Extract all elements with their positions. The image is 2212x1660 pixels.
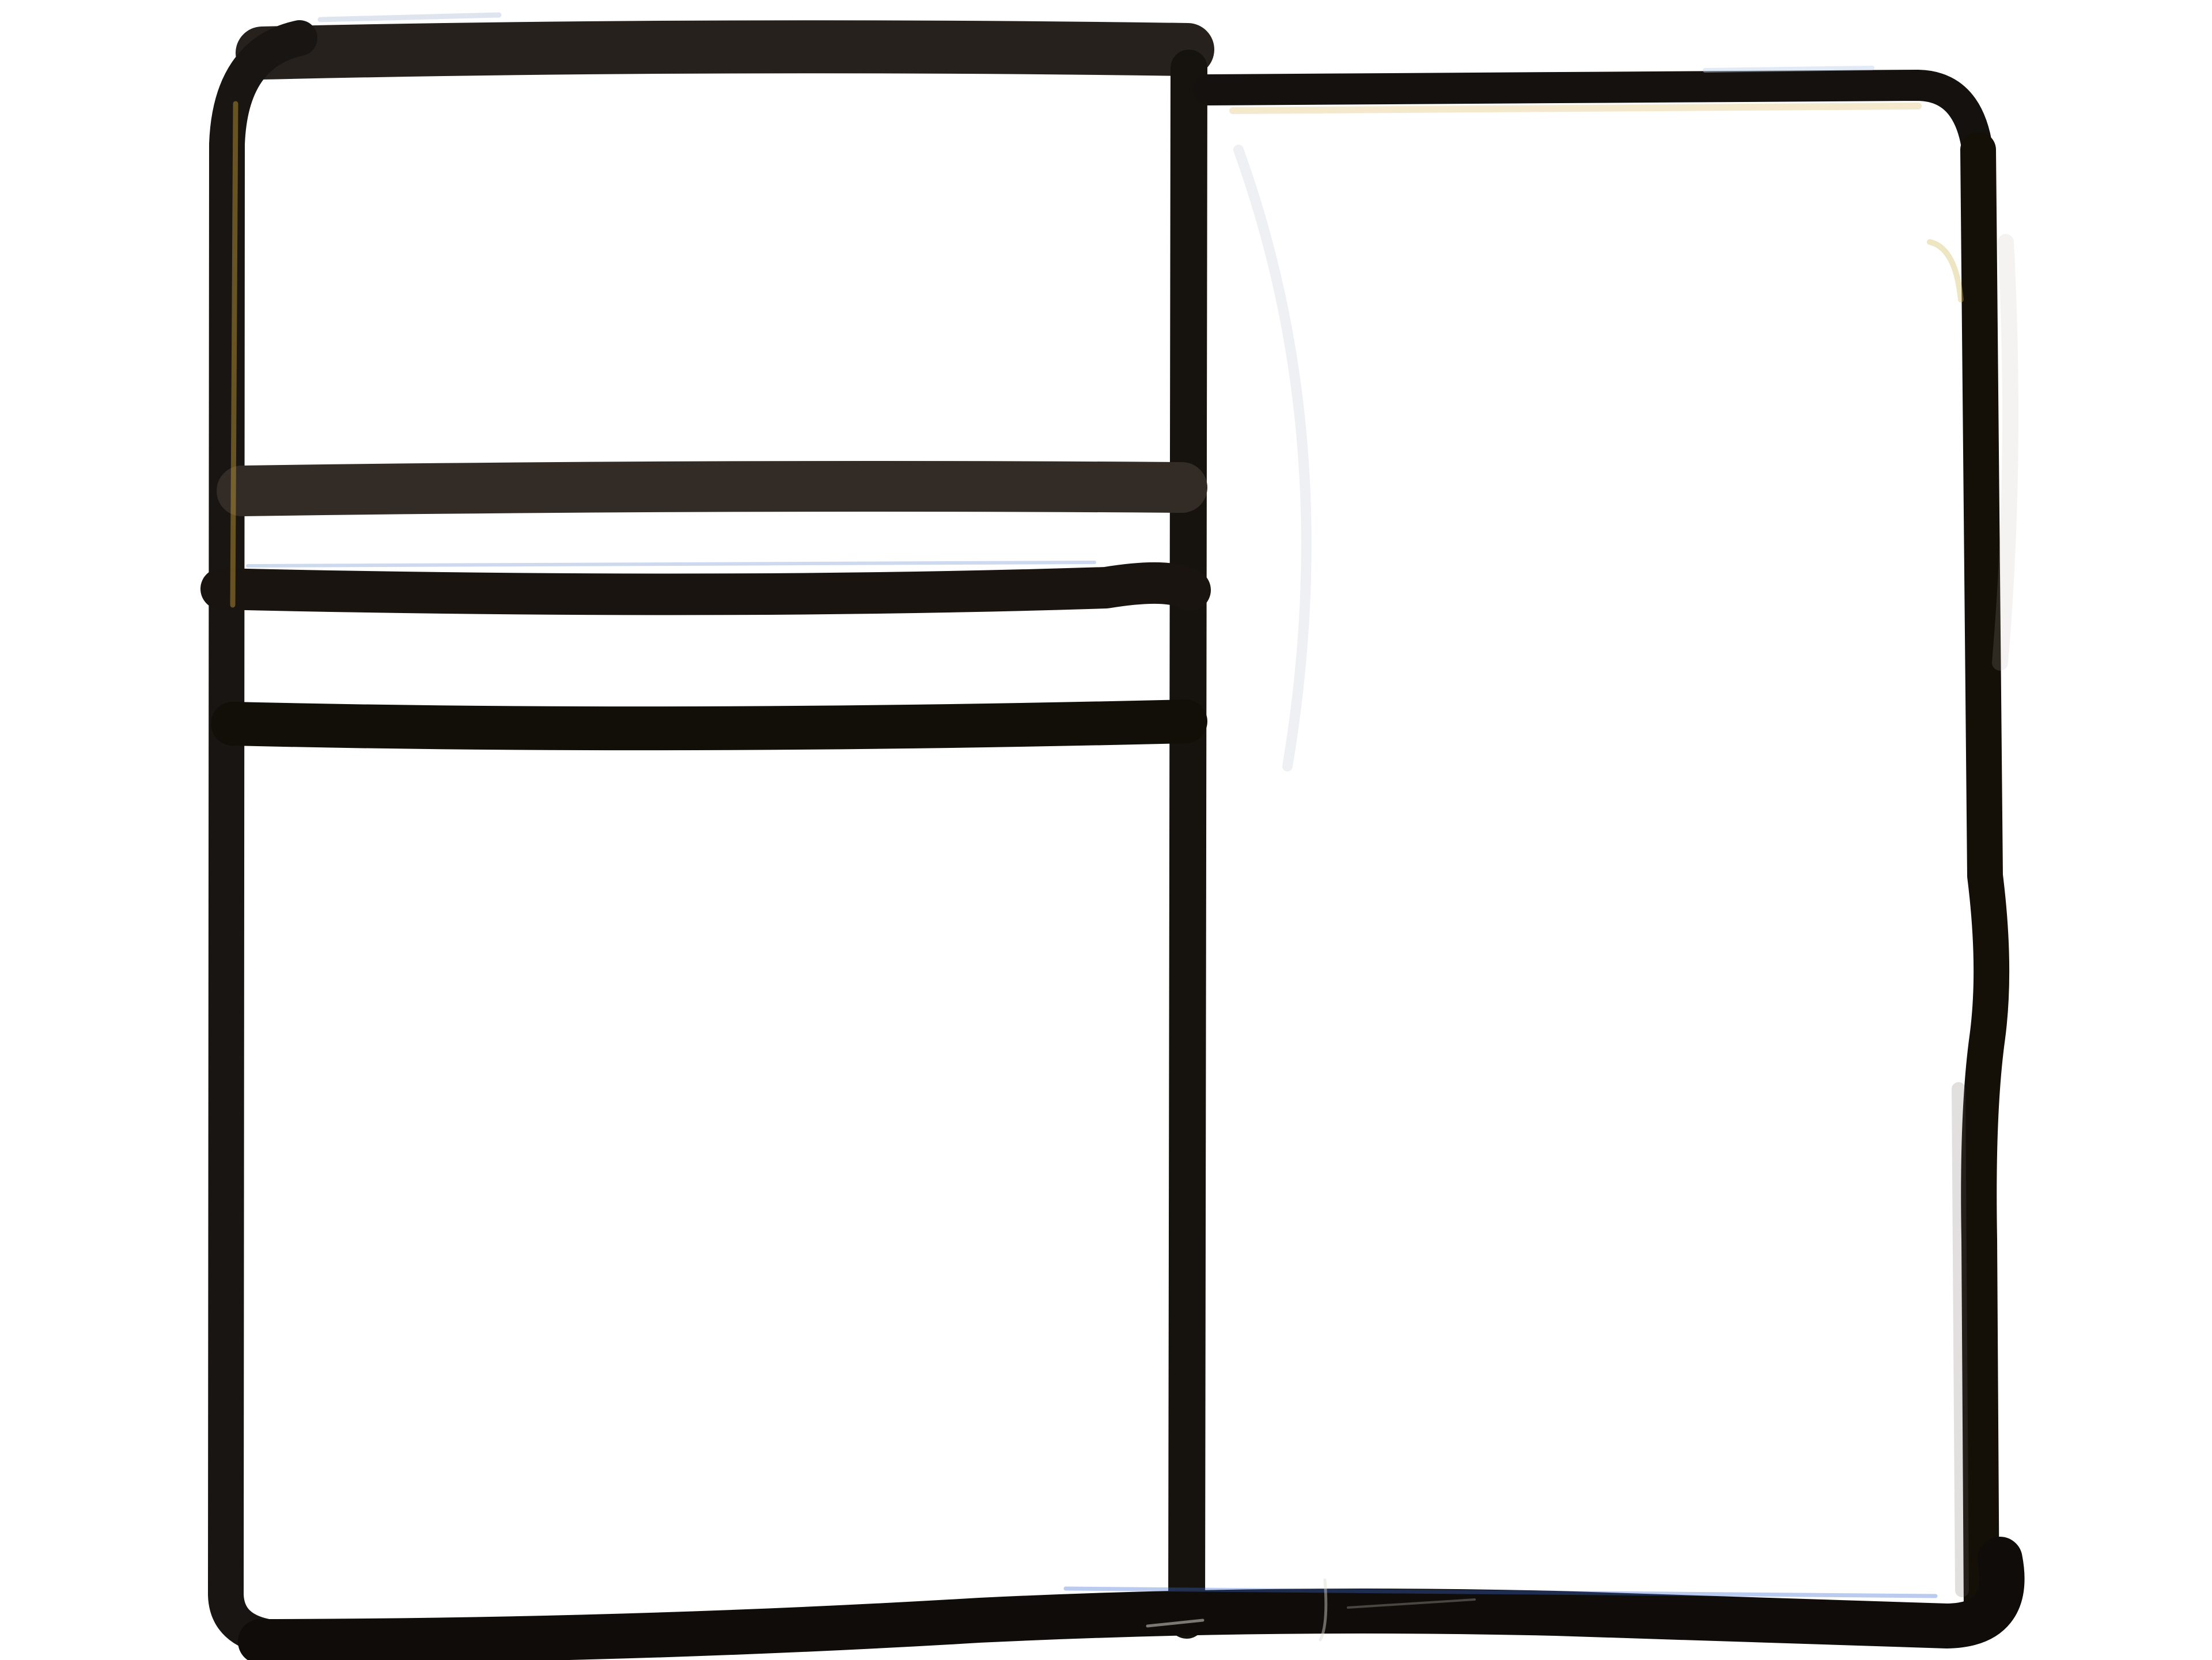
right-side-bar — [1978, 150, 1991, 1608]
blue-fringe-band-middle — [248, 562, 1094, 566]
middle-mullion-bar — [1187, 68, 1189, 1620]
shelf-band-middle — [221, 583, 1190, 595]
blue-sliver-top-left — [320, 15, 499, 20]
right-corner-outer-shadow — [2000, 242, 2010, 663]
shelf-band-bottom — [233, 721, 1185, 728]
bottom-rail-bar — [260, 1559, 2002, 1642]
yellow-fringe-right-top — [1233, 106, 1918, 111]
right-edge-inner-shadow — [1959, 1089, 1962, 1590]
yellow-fringe-left-inner — [233, 104, 236, 605]
right-panel-faint-arc — [1238, 150, 1306, 766]
shelf-band-top — [242, 486, 1182, 491]
left-top-bar — [262, 47, 1188, 53]
artwork-canvas — [0, 0, 2212, 1660]
right-top-bar — [1209, 85, 1979, 173]
yellow-fringe-corner — [1930, 242, 1961, 300]
blue-sliver-right-top — [1705, 68, 1872, 70]
frame-line-art — [0, 0, 2212, 1660]
